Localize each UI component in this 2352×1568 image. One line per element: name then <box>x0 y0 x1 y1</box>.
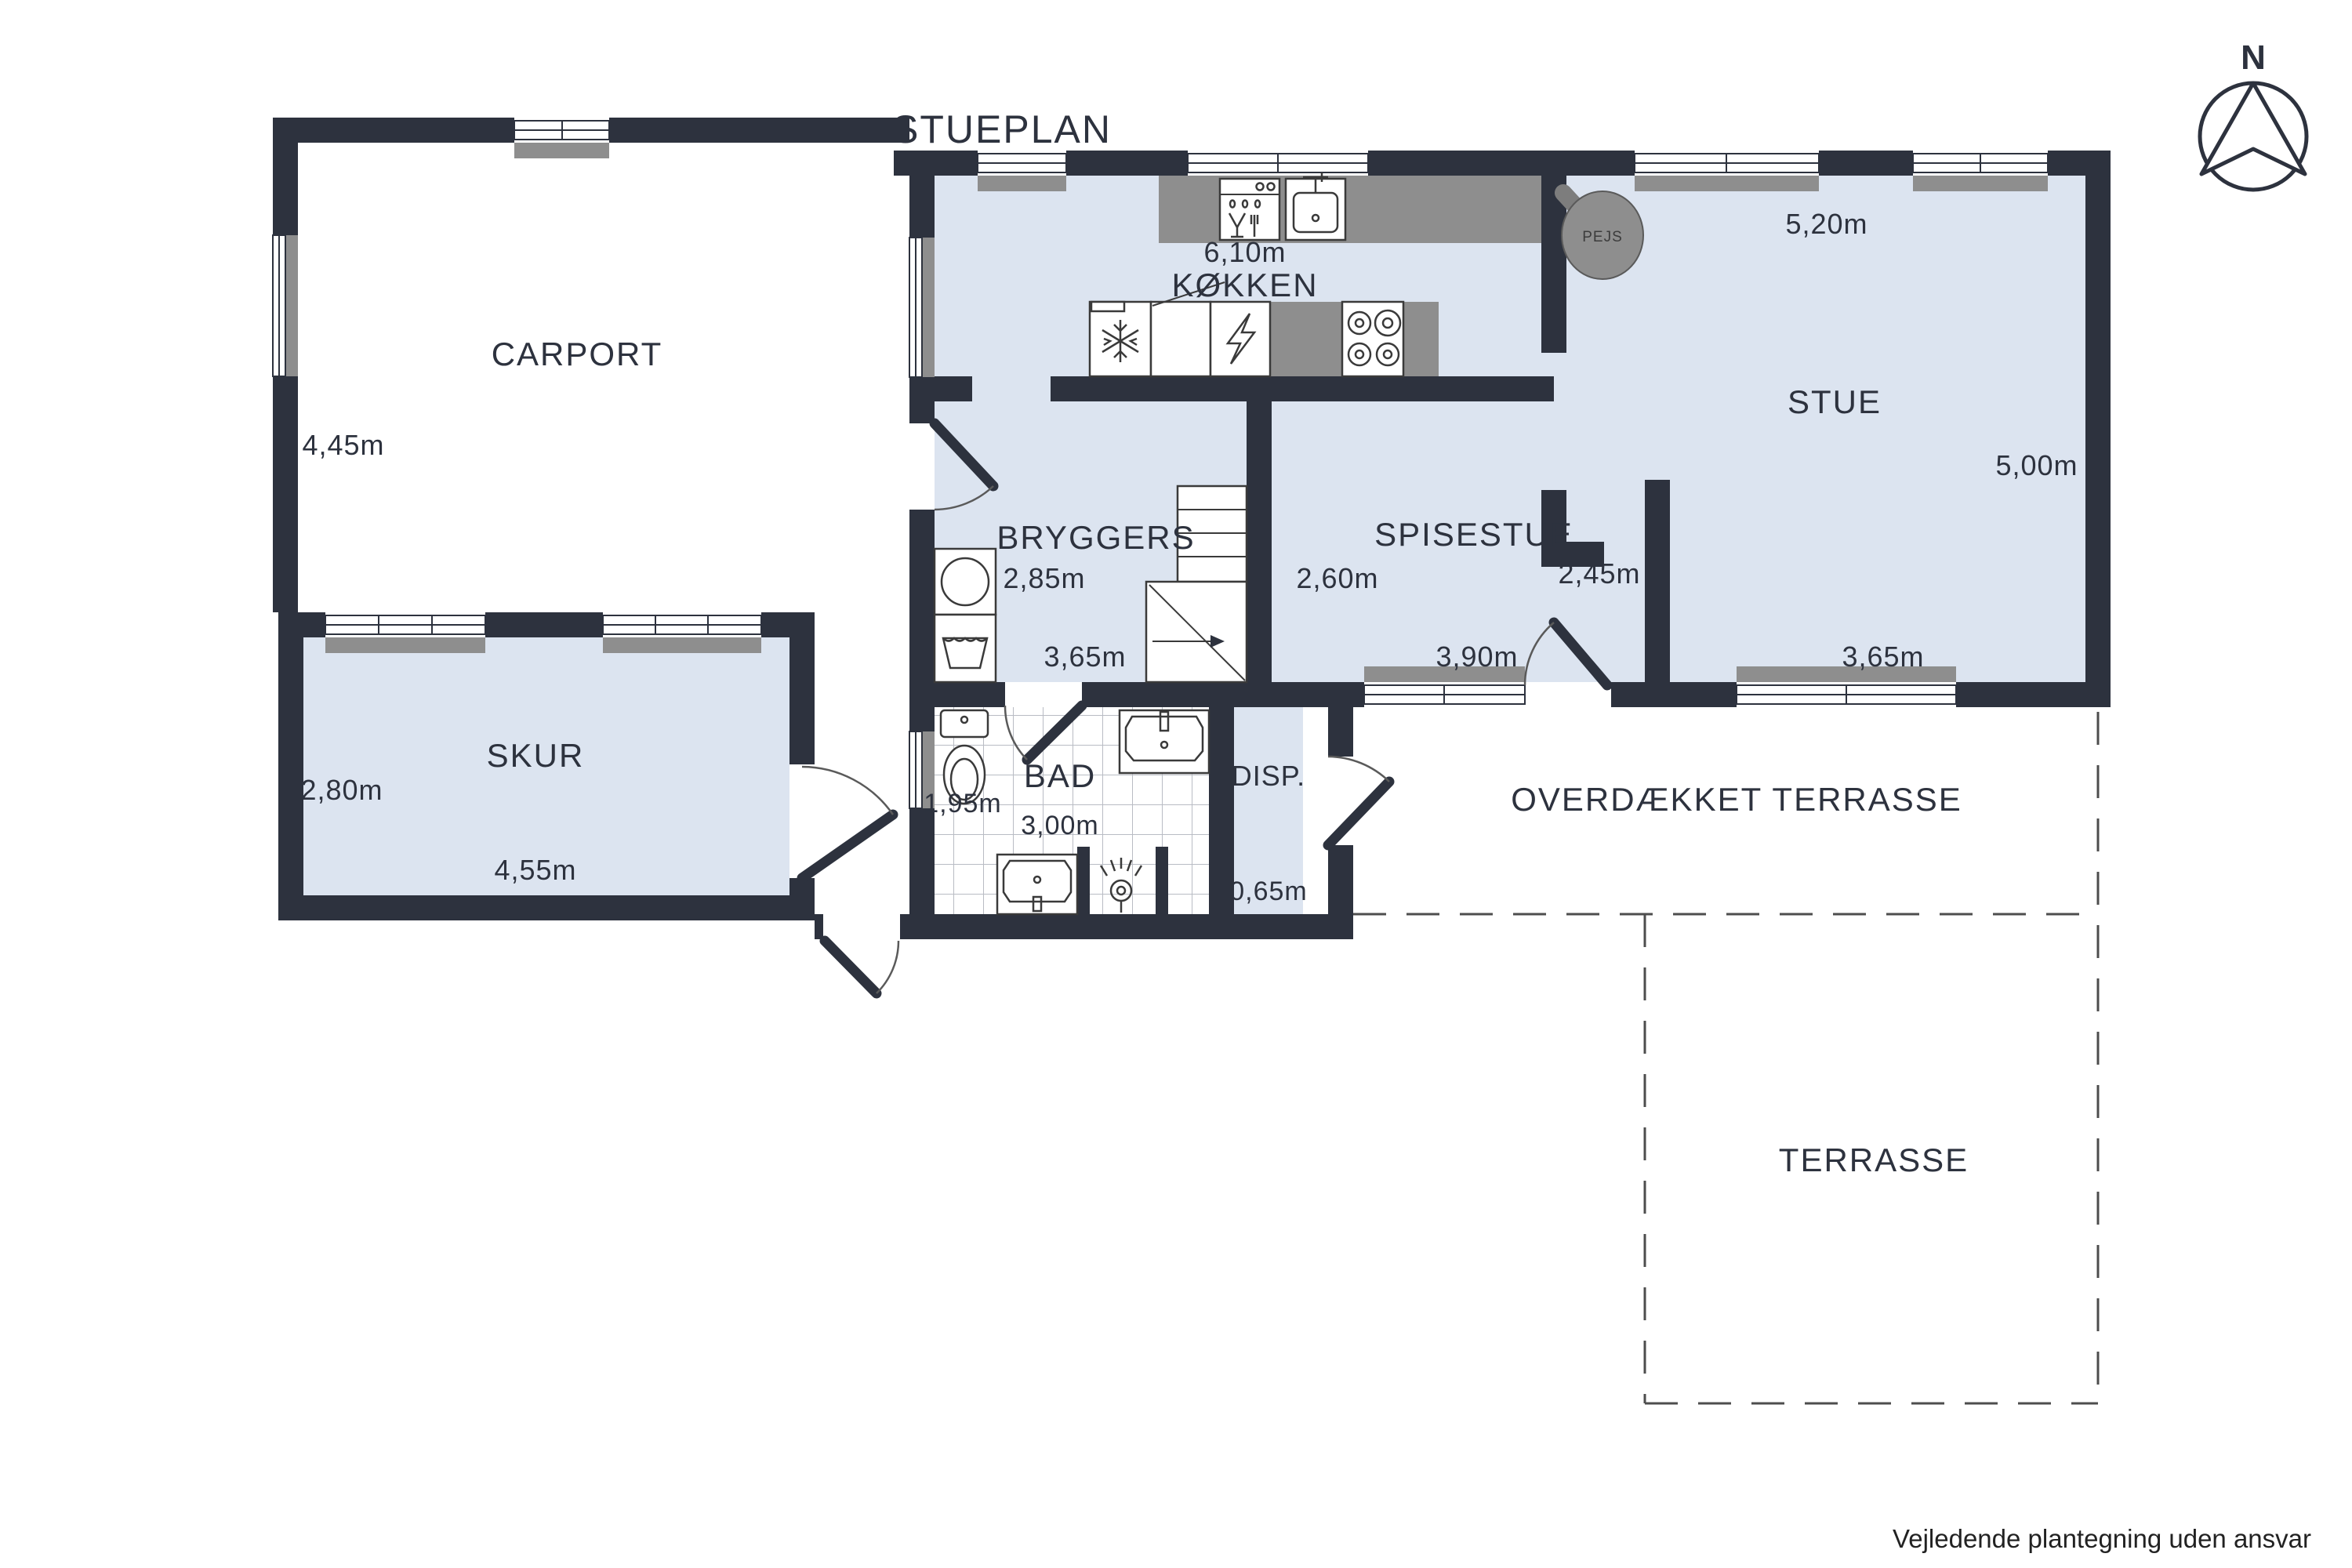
window-kitchen-left <box>909 238 922 377</box>
window-stue-top-right <box>1913 154 2048 172</box>
door-main-entrance <box>825 941 898 993</box>
bad-label: BAD <box>1024 757 1096 794</box>
window-bad-left <box>909 731 922 808</box>
spisestue-label: SPISESTUE <box>1374 516 1573 553</box>
window-stue-bottom <box>1737 685 1956 704</box>
disp-label: DISP. <box>1232 760 1305 792</box>
window-skur-top-right <box>603 615 761 634</box>
laundry-sink-icon <box>935 615 996 682</box>
main-floor <box>935 176 2085 682</box>
fireplace-icon: PEJS <box>1562 191 1643 279</box>
bryggers-fixtures <box>935 549 996 682</box>
washing-machine-icon <box>935 549 996 615</box>
window-spisestue-bottom <box>1364 685 1525 704</box>
window-kitchen-top <box>1188 154 1368 172</box>
disp-width: 0,65m <box>1229 877 1308 906</box>
spisestue-height-right: 2,45m <box>1558 557 1640 590</box>
island-cabinet <box>1151 302 1210 376</box>
compass-icon: N <box>2200 38 2307 190</box>
bad-width: 3,00m <box>1021 811 1099 840</box>
kokken-width: 6,10m <box>1203 236 1286 268</box>
stue-width-top: 5,20m <box>1785 208 1867 240</box>
overdaekket-terrasse-label: OVERDÆKKET TERRASSE <box>1511 781 1962 818</box>
skur-width: 4,55m <box>494 854 576 886</box>
window-carport-top <box>514 121 609 140</box>
stove-icon <box>1342 302 1403 376</box>
fridge-icon <box>1090 302 1151 376</box>
carport-label: CARPORT <box>492 336 663 372</box>
kitchen-sink-icon <box>1286 172 1345 240</box>
dishwasher-icon <box>1220 179 1279 240</box>
stue-height: 5,00m <box>1995 449 2078 481</box>
skur-height: 2,80m <box>300 774 383 806</box>
bath-sink-bottom-icon <box>997 855 1077 914</box>
carport-height: 4,45m <box>302 429 384 461</box>
stue-label: STUE <box>1788 383 1882 420</box>
skur-label: SKUR <box>487 737 585 774</box>
spisestue-width: 3,90m <box>1436 641 1518 673</box>
door-skur <box>802 767 893 878</box>
window-kitchen-top-left <box>978 154 1066 172</box>
kokken-label: KØKKEN <box>1171 267 1318 303</box>
window-skur-top-left <box>325 615 485 634</box>
bryggers-height: 2,85m <box>1003 562 1085 594</box>
bryggers-label: BRYGGERS <box>996 519 1195 556</box>
stue-width-bottom: 3,65m <box>1842 641 1924 673</box>
kitchen-counter <box>1159 176 1541 243</box>
floor-plan-canvas: STUEPLAN N <box>0 0 2352 1568</box>
door-disp <box>1328 757 1389 845</box>
bad-height: 1,95m <box>924 789 1002 818</box>
page-title: STUEPLAN <box>892 107 1112 151</box>
window-stue-top-left <box>1635 154 1819 172</box>
floor-plan-page: STUEPLAN N <box>0 0 2352 1568</box>
oven-icon <box>1210 302 1270 376</box>
window-carport-left <box>273 235 285 376</box>
spisestue-height-left: 2,60m <box>1296 562 1378 594</box>
fireplace-label: PEJS <box>1582 229 1623 245</box>
compass-north-label: N <box>2241 38 2266 77</box>
disclaimer-note: Vejledende plantegning uden ansvar <box>1893 1524 2311 1553</box>
bath-sink-top-icon <box>1120 710 1209 773</box>
bryggers-width: 3,65m <box>1044 641 1126 673</box>
terrasse-label: TERRASSE <box>1779 1142 1969 1178</box>
